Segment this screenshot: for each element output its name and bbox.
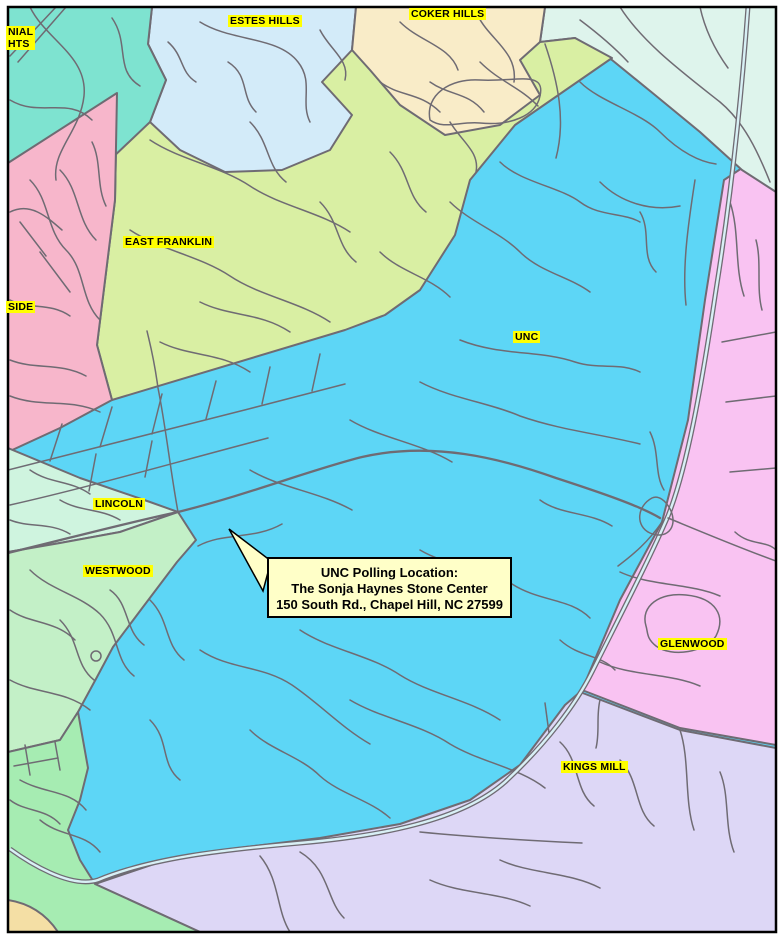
precinct-label-east-franklin: EAST FRANKLIN	[123, 236, 214, 248]
precinct-label-westwood: WESTWOOD	[83, 565, 153, 577]
callout-line-1: UNC Polling Location:	[269, 565, 510, 581]
precinct-label-colonial-heights: NIAL HTS	[6, 26, 35, 50]
precinct-label-coker-hills: COKER HILLS	[409, 8, 486, 20]
region-estes-hills	[148, 7, 356, 172]
callout-line-2: The Sonja Haynes Stone Center	[269, 581, 510, 597]
precinct-label-side: SIDE	[6, 301, 35, 313]
precinct-map: NIAL HTS ESTES HILLS COKER HILLS EAST FR…	[0, 0, 784, 940]
precinct-label-lincoln: LINCOLN	[93, 498, 145, 510]
precinct-label-kings-mill: KINGS MILL	[561, 761, 628, 773]
callout-line-3: 150 South Rd., Chapel Hill, NC 27599	[269, 597, 510, 613]
precinct-label-glenwood: GLENWOOD	[658, 638, 727, 650]
polling-location-callout: UNC Polling Location: The Sonja Haynes S…	[267, 557, 512, 618]
precinct-label-unc: UNC	[513, 331, 540, 343]
map-image	[0, 0, 784, 940]
precinct-label-estes-hills: ESTES HILLS	[228, 15, 302, 27]
map-regions	[8, 7, 776, 932]
